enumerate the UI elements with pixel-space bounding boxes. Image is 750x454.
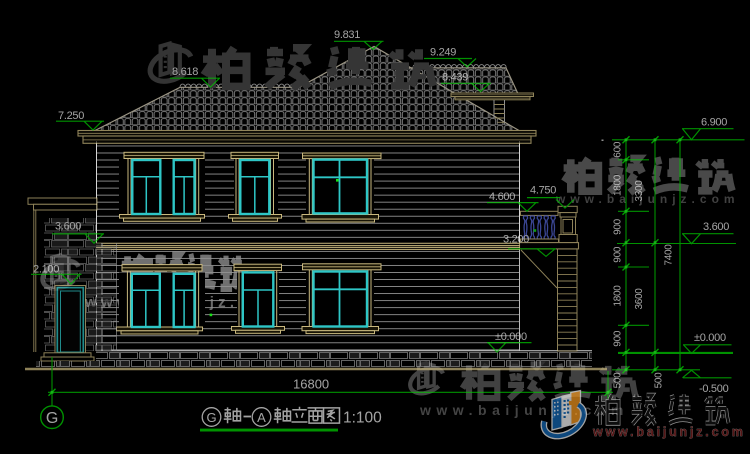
- svg-text:1800: 1800: [613, 174, 624, 196]
- svg-text:6.900: 6.900: [701, 117, 727, 129]
- svg-text:www.baijunjz.com: www.baijunjz.com: [555, 192, 740, 206]
- svg-text:9.831: 9.831: [334, 29, 360, 41]
- svg-text:500: 500: [613, 372, 624, 389]
- svg-text:3600: 3600: [634, 288, 645, 310]
- svg-text:16800: 16800: [293, 377, 329, 392]
- svg-text:www.baijunjz.com: www.baijunjz.com: [592, 425, 746, 439]
- svg-text:7400: 7400: [664, 244, 675, 266]
- svg-text:900: 900: [613, 330, 624, 347]
- svg-text:±0.000: ±0.000: [694, 332, 726, 344]
- svg-text:9.249: 9.249: [430, 47, 456, 59]
- svg-text:3.200: 3.200: [503, 233, 529, 245]
- svg-text:4.600: 4.600: [489, 191, 515, 203]
- svg-text:1800: 1800: [613, 285, 624, 307]
- svg-text:G: G: [46, 410, 58, 427]
- svg-text:8.439: 8.439: [442, 72, 468, 84]
- svg-text:±0.000: ±0.000: [495, 331, 527, 343]
- svg-text:7.250: 7.250: [58, 110, 84, 122]
- svg-text:3.600: 3.600: [703, 221, 729, 233]
- svg-text:500: 500: [654, 372, 665, 389]
- svg-text:900: 900: [613, 246, 624, 263]
- svg-text:-0.500: -0.500: [699, 383, 729, 395]
- svg-text:3300: 3300: [634, 180, 645, 202]
- svg-text:1:100: 1:100: [343, 410, 382, 427]
- svg-text:3.600: 3.600: [55, 221, 81, 233]
- svg-text:4.750: 4.750: [530, 184, 556, 196]
- svg-text:2.100: 2.100: [33, 263, 59, 275]
- svg-text:A: A: [257, 410, 266, 425]
- svg-text:G: G: [206, 410, 216, 425]
- svg-text:8.618: 8.618: [172, 66, 198, 78]
- svg-text:600: 600: [613, 141, 624, 158]
- svg-text:900: 900: [613, 218, 624, 235]
